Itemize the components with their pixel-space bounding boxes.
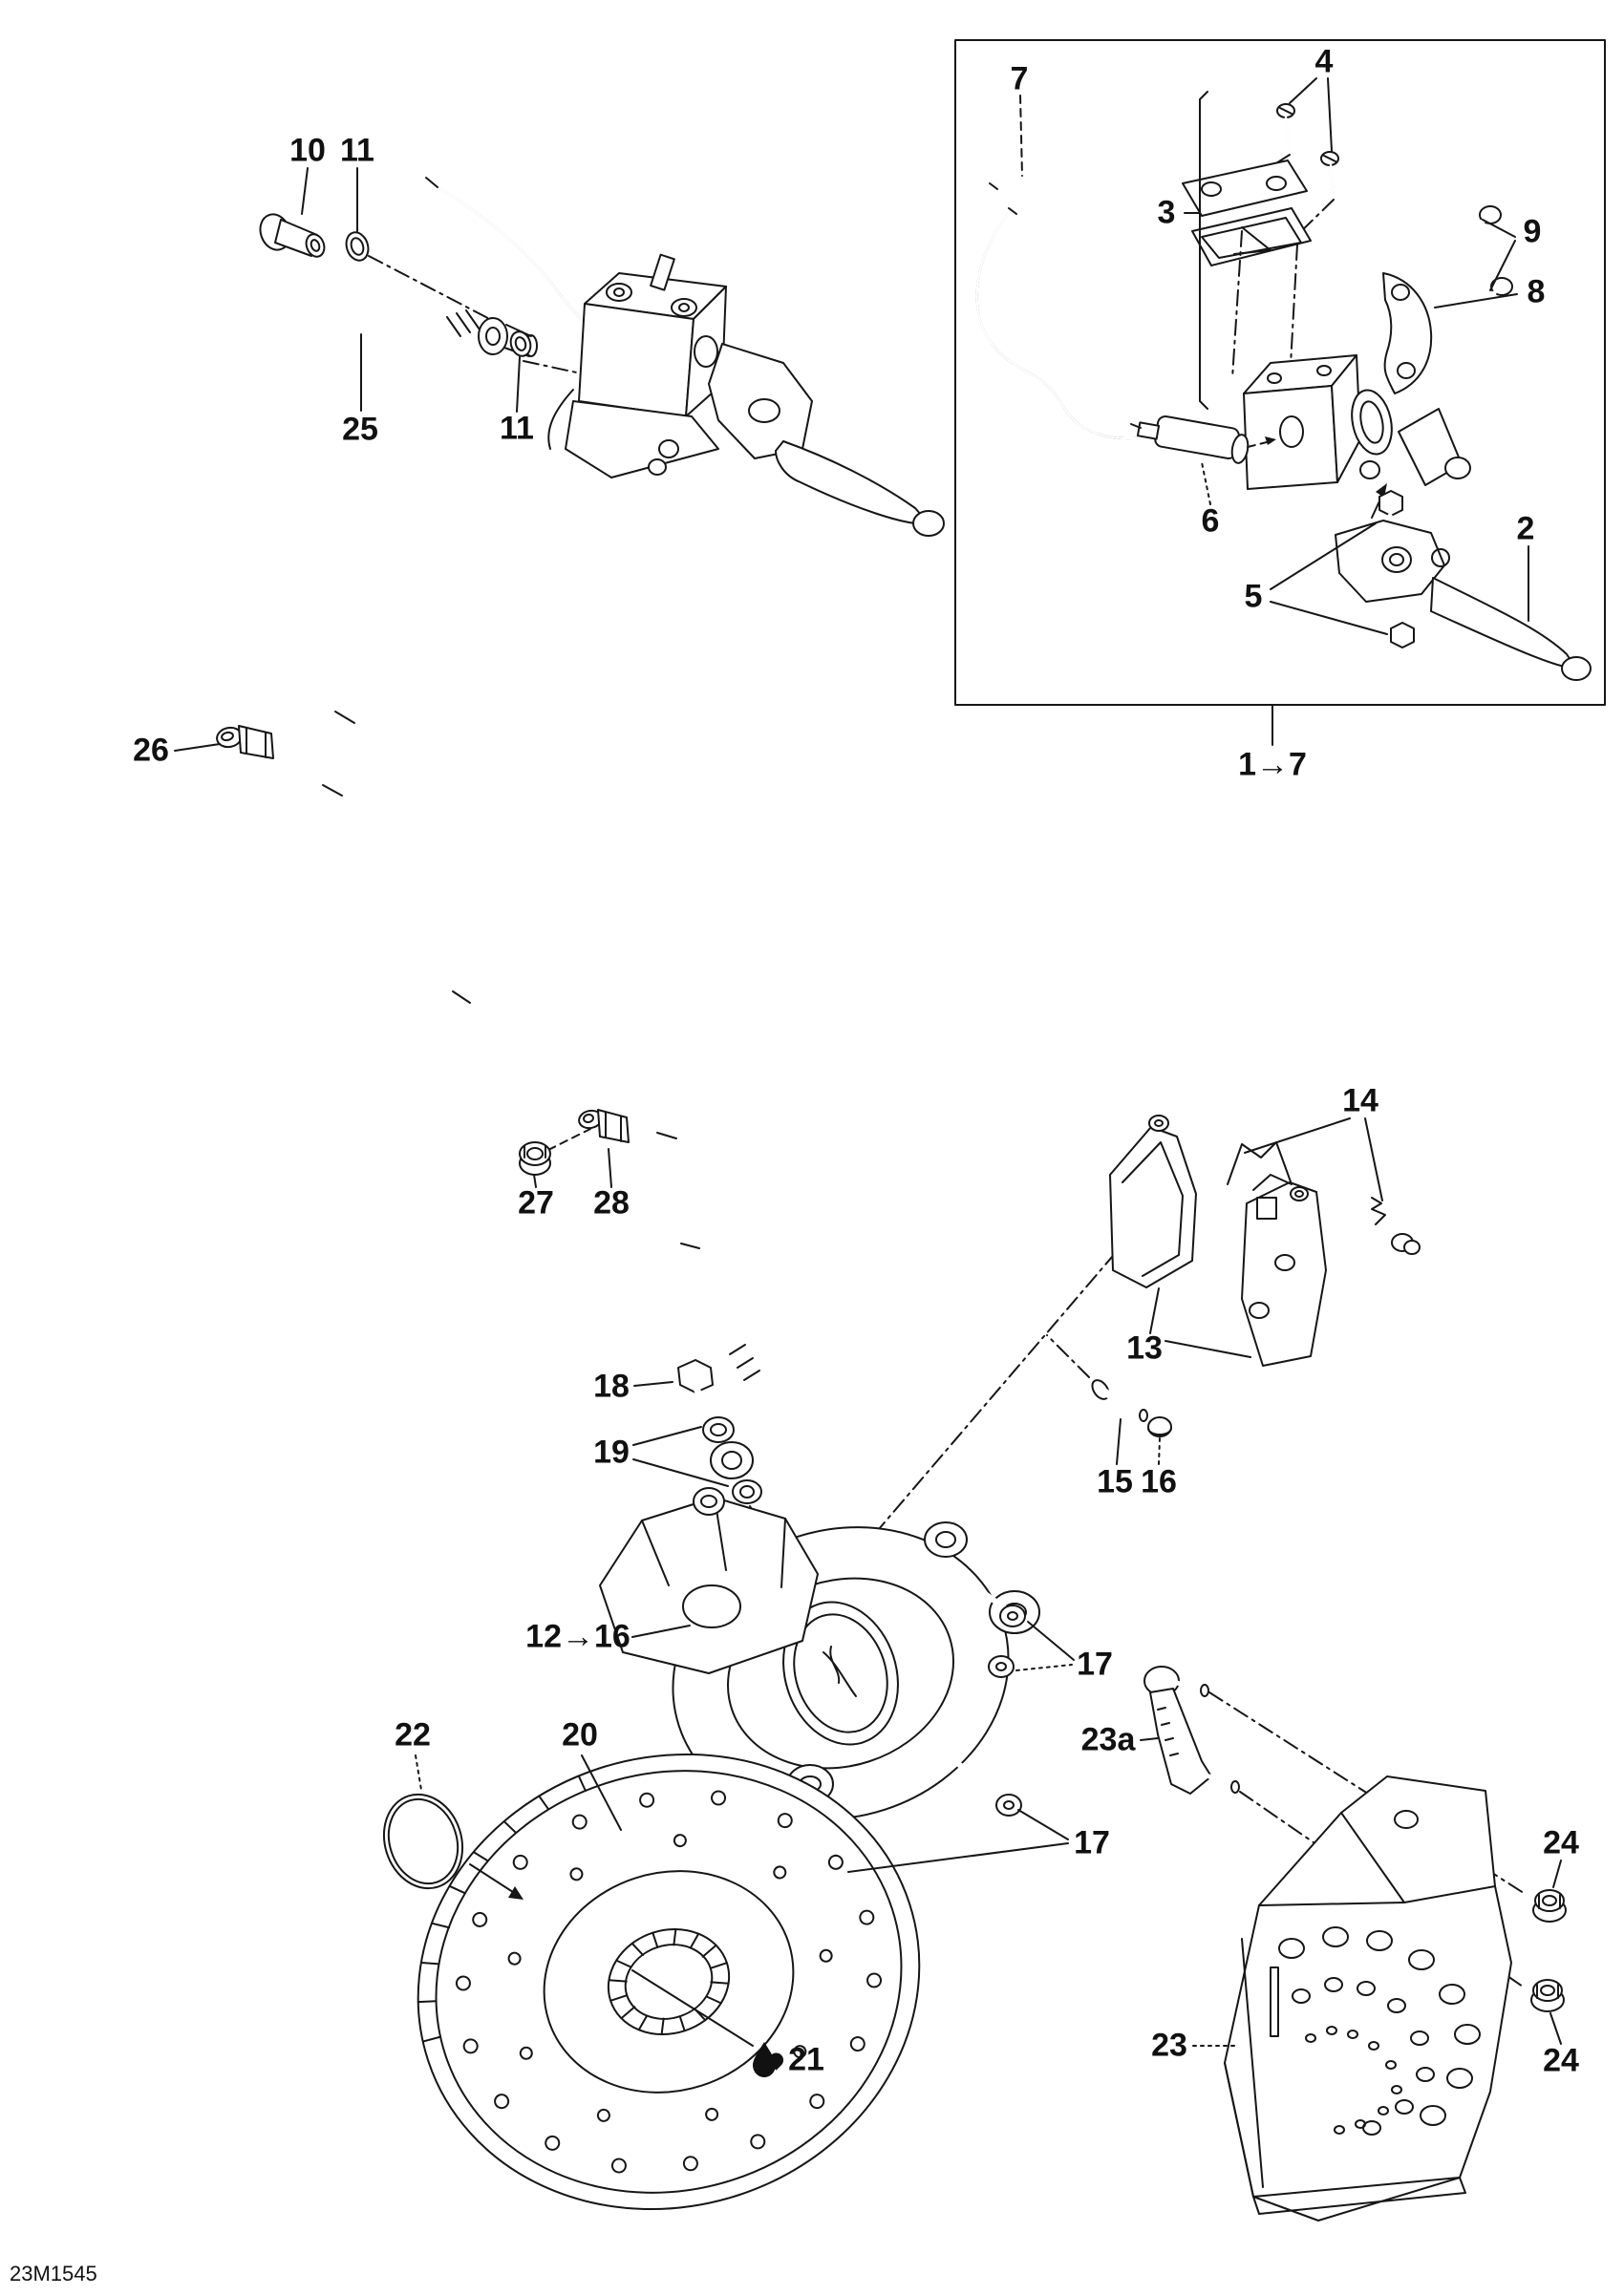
diagram-artwork xyxy=(0,0,1624,2296)
callout-6: 6 xyxy=(1202,503,1220,541)
callout-text: 24 xyxy=(1543,1825,1579,1862)
callout-text: 16 xyxy=(1141,1464,1177,1501)
callout-text: 17 xyxy=(1074,1825,1110,1862)
callout-text: 26 xyxy=(133,733,169,770)
callout-9: 9 xyxy=(1524,214,1542,251)
callout-17-upper: 17 xyxy=(1077,1647,1113,1684)
flange-nut-24-upper xyxy=(1533,1890,1566,1922)
callout-16: 16 xyxy=(1141,1464,1177,1501)
master-cylinder-assembly xyxy=(548,255,944,536)
callout-17-lower: 17 xyxy=(1074,1825,1110,1862)
adapter-bracket-23a xyxy=(1144,1667,1239,1794)
callout-21: 21 xyxy=(769,2042,824,2079)
inset-reservoir-cover-3 xyxy=(1183,160,1307,216)
callout-15: 15 xyxy=(1097,1464,1133,1501)
callout-24-upper: 24 xyxy=(1543,1825,1579,1862)
callout-11-upper: 11 xyxy=(340,133,374,170)
inset-switch-wires-7 xyxy=(977,183,1144,438)
flange-nut-24-lower xyxy=(1531,1980,1564,2011)
oil-droplet-icon xyxy=(766,2050,786,2070)
metal-brake-pipe xyxy=(426,178,602,334)
callout-text: 7 xyxy=(1011,61,1029,98)
inset-boot-2 xyxy=(1399,409,1470,485)
callout-text: 13 xyxy=(1126,1330,1163,1368)
caliper-bolt-17-d xyxy=(957,1763,1021,1816)
banjo-bolt-10 xyxy=(255,210,327,259)
callout-text: 15 xyxy=(1097,1464,1133,1501)
bleeder-cap-16 xyxy=(1148,1417,1171,1436)
bleeder-valve-15 xyxy=(1089,1377,1147,1421)
callout-text: 23a xyxy=(1081,1722,1136,1759)
callout-18: 18 xyxy=(593,1369,630,1406)
callout-11-lower: 11 xyxy=(500,411,534,448)
callout-text: 8 xyxy=(1528,274,1546,311)
callout-text: 2 xyxy=(1517,511,1535,548)
callout-26: 26 xyxy=(133,733,169,770)
inset-master-cylinder-body xyxy=(1244,355,1398,489)
callout-12-16: 12→16 xyxy=(525,1619,630,1656)
callout-text: 24 xyxy=(1543,2043,1579,2080)
callout-text: 19 xyxy=(593,1435,630,1472)
figure-code: 23M1545 xyxy=(10,2262,97,2286)
callout-text: 17 xyxy=(1077,1647,1113,1684)
callout-14: 14 xyxy=(1342,1083,1378,1120)
callout-22: 22 xyxy=(395,1717,431,1754)
callout-text: 20 xyxy=(562,1717,598,1754)
callout-text: 25 xyxy=(342,412,378,449)
inset-handlebar-clamp-8 xyxy=(1383,273,1431,393)
callout-text: 4 xyxy=(1315,44,1334,81)
callout-text: 1→7 xyxy=(1238,747,1307,784)
callout-1-7: 1→7 xyxy=(1238,747,1307,784)
inset-reservoir-gasket-3 xyxy=(1192,208,1311,382)
callout-23a: 23a xyxy=(1081,1722,1136,1759)
callout-text: 28 xyxy=(593,1185,630,1222)
hose-clamp-26 xyxy=(215,726,273,758)
callout-5: 5 xyxy=(1245,579,1263,616)
callout-24-lower: 24 xyxy=(1543,2043,1579,2080)
callout-27: 27 xyxy=(518,1185,554,1222)
washer-11-lower xyxy=(507,330,533,359)
callout-text: 10 xyxy=(289,133,326,170)
callout-7: 7 xyxy=(1011,61,1029,98)
callout-text: 27 xyxy=(518,1185,554,1222)
nut-27 xyxy=(520,1142,550,1175)
callout-text: 11 xyxy=(500,411,534,448)
callout-3: 3 xyxy=(1158,195,1176,232)
callout-text: 3 xyxy=(1158,195,1176,232)
brake-pads-13 xyxy=(1110,1116,1326,1366)
callout-text: 5 xyxy=(1245,579,1263,616)
callout-13: 13 xyxy=(1126,1330,1163,1368)
banjo-bolt-18 xyxy=(678,1360,713,1421)
callout-19: 19 xyxy=(593,1435,630,1472)
callout-20: 20 xyxy=(562,1717,598,1754)
callout-text: 18 xyxy=(593,1369,630,1406)
hose-clamp-28 xyxy=(577,1109,629,1142)
callout-text: 21 xyxy=(788,2042,824,2079)
callout-text: 23 xyxy=(1151,2028,1187,2065)
callout-10: 10 xyxy=(289,133,326,170)
parts-diagram-page: 10112511262728181912→1617171314151620222… xyxy=(0,0,1624,2296)
callout-28: 28 xyxy=(593,1185,630,1222)
callout-text: 14 xyxy=(1342,1083,1378,1120)
inset-brake-lever-2 xyxy=(1336,521,1591,680)
callout-text: 12→16 xyxy=(525,1619,630,1656)
pad-pin-14 xyxy=(1334,1198,1420,1254)
callout-text: 9 xyxy=(1524,214,1542,251)
callout-23: 23 xyxy=(1151,2028,1187,2065)
callout-8: 8 xyxy=(1528,274,1546,311)
callout-25: 25 xyxy=(342,412,378,449)
callout-text: 11 xyxy=(340,133,374,170)
callout-text: 6 xyxy=(1202,503,1220,541)
guard-plate-23 xyxy=(1225,1776,1511,2221)
washer-11-upper xyxy=(343,229,372,263)
callout-4: 4 xyxy=(1315,44,1334,81)
callout-2: 2 xyxy=(1517,511,1535,548)
callout-text: 22 xyxy=(395,1717,431,1754)
